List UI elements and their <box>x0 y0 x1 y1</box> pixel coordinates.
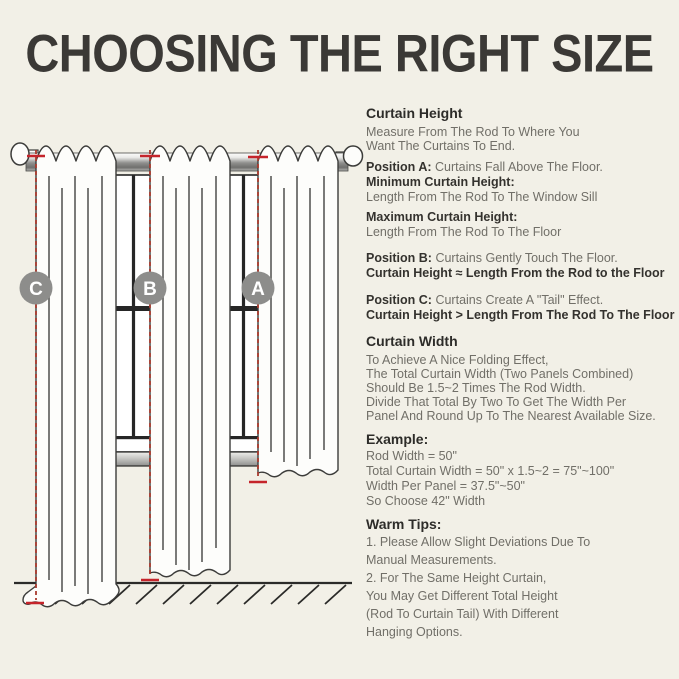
curtain-width-line: Panel And Round Up To The Nearest Availa… <box>366 409 678 423</box>
curtain-width-line: Divide That Total By Two To Get The Widt… <box>366 395 678 409</box>
warm-tips-line: You May Get Different Total Height <box>366 587 678 605</box>
example-line: So Choose 42" Width <box>366 494 678 509</box>
warm-tips-heading: Warm Tips: <box>366 516 678 533</box>
warm-tips-line: 1. Please Allow Slight Deviations Due To <box>366 533 678 551</box>
curtain-width-line: Should Be 1.5~2 Times The Rod Width. <box>366 381 678 395</box>
curtain-width-line: To Achieve A Nice Folding Effect, <box>366 353 678 367</box>
section-position-b: Position B: Curtains Gently Touch The Fl… <box>366 251 678 281</box>
curtain-size-infographic: CHOOSING THE RIGHT SIZE <box>0 0 679 679</box>
example-heading: Example: <box>366 431 678 448</box>
finial-right <box>344 146 363 166</box>
curtain-height-heading: Curtain Height <box>366 105 678 122</box>
curtain-panel-b <box>150 146 230 577</box>
section-position-c: Position C: Curtains Create A "Tail" Eff… <box>366 293 678 323</box>
example-line: Width Per Panel = 37.5"~50" <box>366 479 678 494</box>
curtain-width-line: The Total Curtain Width (Two Panels Comb… <box>366 367 678 381</box>
section-example: Example: Rod Width = 50" Total Curtain W… <box>366 431 678 509</box>
position-a-line: Position A: Curtains Fall Above The Floo… <box>366 160 678 175</box>
finial-left <box>11 143 29 165</box>
badge-b: B <box>134 272 167 305</box>
example-line: Rod Width = 50" <box>366 449 678 464</box>
example-line: Total Curtain Width = 50" x 1.5~2 = 75"~… <box>366 464 678 479</box>
min-curtain-height-heading: Minimum Curtain Height: <box>366 175 678 190</box>
warm-tips-line: Manual Measurements. <box>366 551 678 569</box>
min-curtain-height-text: Length From The Rod To The Window Sill <box>366 190 678 205</box>
badge-a: A <box>242 272 275 305</box>
svg-text:A: A <box>251 279 265 300</box>
max-curtain-height-heading: Maximum Curtain Height: <box>366 210 678 225</box>
max-curtain-height-text: Length From The Rod To The Floor <box>366 225 678 240</box>
position-b-line: Position B: Curtains Gently Touch The Fl… <box>366 251 678 266</box>
position-b-formula: Curtain Height ≈ Length From the Rod to … <box>366 266 678 281</box>
warm-tips-line: 2. For The Same Height Curtain, <box>366 569 678 587</box>
warm-tips-line: (Rod To Curtain Tail) With Different <box>366 605 678 623</box>
curtain-panel-c <box>23 146 119 607</box>
warm-tips-line: Hanging Options. <box>366 623 678 641</box>
curtain-height-line: Want The Curtains To End. <box>366 139 678 153</box>
svg-text:C: C <box>29 279 43 300</box>
svg-text:B: B <box>143 279 157 300</box>
badge-c: C <box>20 272 53 305</box>
section-curtain-width: Curtain Width To Achieve A Nice Folding … <box>366 333 678 423</box>
position-c-line: Position C: Curtains Create A "Tail" Eff… <box>366 293 678 308</box>
curtain-width-heading: Curtain Width <box>366 333 678 350</box>
section-curtain-height: Curtain Height Measure From The Rod To W… <box>366 105 678 153</box>
position-c-formula: Curtain Height > Length From The Rod To … <box>366 308 678 323</box>
curtain-panel-a <box>258 146 338 477</box>
section-position-a: Position A: Curtains Fall Above The Floo… <box>366 160 678 240</box>
section-warm-tips: Warm Tips: 1. Please Allow Slight Deviat… <box>366 516 678 641</box>
curtain-height-line: Measure From The Rod To Where You <box>366 125 678 139</box>
